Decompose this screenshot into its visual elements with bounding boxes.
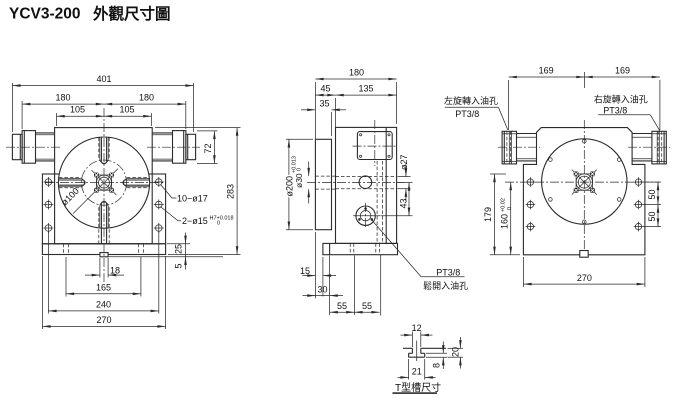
svg-text:ø27: ø27 (399, 154, 409, 170)
svg-text:270: 270 (577, 273, 592, 283)
svg-text:15: 15 (300, 266, 310, 276)
svg-text:180: 180 (349, 68, 364, 78)
svg-text:283: 283 (226, 184, 236, 199)
svg-text:0: 0 (297, 168, 303, 171)
svg-text:180: 180 (55, 93, 70, 103)
svg-text:2−ø15: 2−ø15 (182, 216, 208, 226)
svg-text:8: 8 (432, 363, 442, 368)
svg-text:25: 25 (174, 244, 184, 254)
svg-text:T型槽尺寸: T型槽尺寸 (395, 381, 441, 394)
svg-text:外觀尺寸圖: 外觀尺寸圖 (93, 4, 171, 23)
svg-text:ø30: ø30 (294, 173, 304, 188)
svg-text:165: 165 (96, 283, 111, 293)
svg-text:105: 105 (70, 105, 85, 115)
svg-text:45: 45 (320, 84, 330, 94)
svg-text:右旋轉入油孔: 右旋轉入油孔 (594, 93, 648, 104)
svg-text:169: 169 (539, 66, 554, 76)
svg-text:YCV3-200: YCV3-200 (9, 6, 81, 23)
svg-text:240: 240 (96, 300, 111, 310)
svg-text:160: 160 (500, 214, 510, 229)
svg-text:左旋轉入油孔: 左旋轉入油孔 (444, 95, 498, 106)
svg-text:PT3/8: PT3/8 (455, 109, 479, 119)
svg-text:55: 55 (337, 301, 347, 311)
svg-text:180: 180 (139, 93, 154, 103)
svg-text:169: 169 (615, 66, 630, 76)
svg-text:135: 135 (358, 84, 373, 94)
svg-text:43: 43 (399, 198, 409, 208)
svg-text:10−ø17: 10−ø17 (177, 194, 208, 204)
svg-text:179: 179 (483, 207, 493, 222)
svg-text:21: 21 (412, 366, 422, 376)
svg-text:20: 20 (450, 347, 460, 357)
svg-text:5: 5 (174, 263, 184, 268)
svg-text:35: 35 (319, 98, 329, 108)
svg-text:401: 401 (96, 74, 111, 84)
svg-text:55: 55 (362, 301, 372, 311)
svg-text:0: 0 (217, 221, 220, 227)
svg-text:鬆開入油孔: 鬆開入油孔 (423, 280, 468, 291)
svg-text:50: 50 (647, 189, 657, 199)
svg-text:270: 270 (96, 315, 111, 325)
svg-text:H7+0.018: H7+0.018 (210, 216, 234, 222)
svg-text:12: 12 (412, 323, 422, 333)
svg-text:30: 30 (317, 285, 327, 295)
svg-text:50: 50 (647, 211, 657, 221)
svg-text:+0.02: +0.02 (501, 198, 507, 212)
svg-text:105: 105 (119, 105, 134, 115)
svg-text:PT3/8: PT3/8 (436, 267, 460, 277)
svg-text:0: 0 (507, 207, 513, 210)
svg-text:18: 18 (110, 265, 120, 275)
svg-text:PT3/8: PT3/8 (603, 105, 627, 115)
svg-text:72: 72 (203, 143, 213, 153)
